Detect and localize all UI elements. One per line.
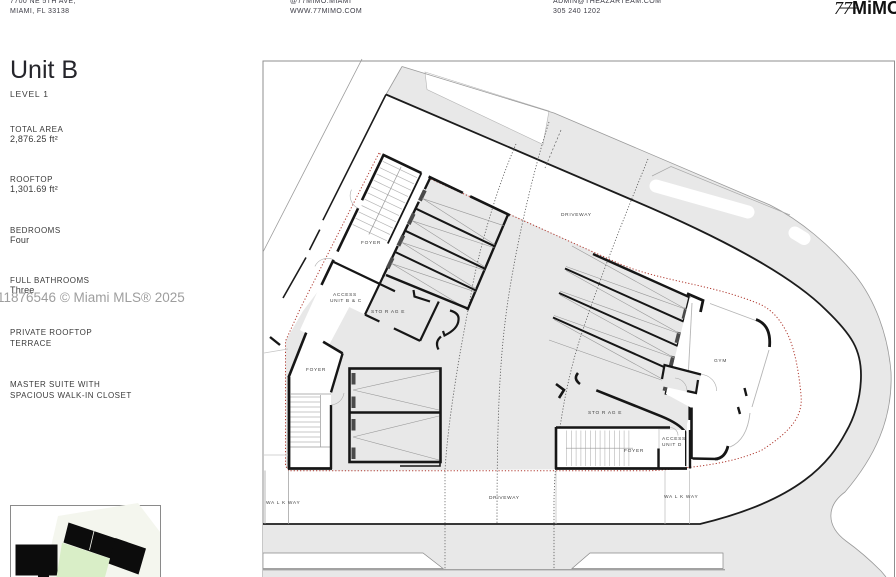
svg-text:ACCESS: ACCESS	[662, 436, 686, 442]
svg-text:FOYER: FOYER	[306, 367, 326, 373]
svg-text:ACCESS: ACCESS	[333, 292, 357, 298]
svg-text:STO R AG E: STO R AG E	[588, 410, 622, 416]
svg-text:STO R AG E: STO R AG E	[371, 309, 405, 315]
svg-text:WA L K WAY: WA L K WAY	[266, 500, 300, 506]
svg-text:UNIT D: UNIT D	[662, 442, 682, 448]
svg-text:DRIVEWAY: DRIVEWAY	[561, 212, 592, 218]
svg-text:FOYER: FOYER	[624, 448, 644, 454]
svg-text:WA L K WAY: WA L K WAY	[664, 494, 698, 500]
svg-text:DRIVEWAY: DRIVEWAY	[489, 495, 520, 501]
svg-text:FOYER: FOYER	[361, 240, 381, 246]
svg-text:UNIT B & C: UNIT B & C	[330, 298, 362, 304]
svg-text:GYM: GYM	[714, 358, 727, 364]
